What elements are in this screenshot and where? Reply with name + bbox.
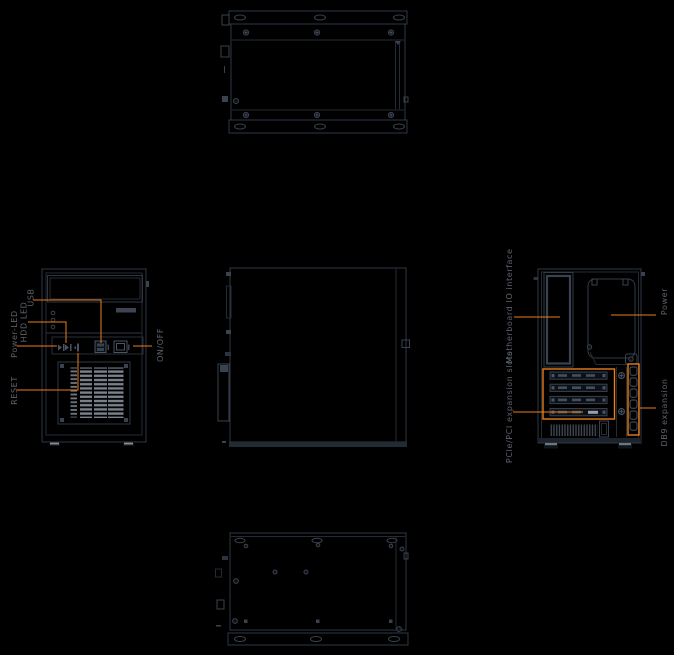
label-power-led: Power-LED bbox=[10, 310, 19, 358]
bottom-mounting-flange bbox=[228, 633, 408, 645]
leader-reset bbox=[17, 353, 78, 390]
psu-area bbox=[587, 279, 637, 365]
side-tab bbox=[226, 330, 231, 334]
bottom-mounting-flange bbox=[229, 120, 407, 133]
screw bbox=[233, 619, 238, 624]
screw bbox=[234, 579, 239, 584]
chassis-orthographic-diagram: USB HDD LED Power-LED RESET ON/OFF bbox=[0, 0, 674, 655]
reset-button bbox=[77, 344, 79, 352]
usb-port bbox=[95, 341, 109, 353]
screw bbox=[400, 547, 404, 551]
label-power: Power bbox=[660, 288, 669, 315]
screw bbox=[388, 112, 393, 117]
mounting-slot bbox=[311, 637, 322, 642]
side-view bbox=[218, 268, 410, 447]
rear-vent-comb bbox=[551, 425, 598, 437]
power-switch bbox=[114, 341, 130, 353]
side-tab bbox=[217, 600, 224, 609]
screw bbox=[629, 357, 634, 362]
front-grille bbox=[58, 362, 130, 424]
screw bbox=[234, 99, 239, 104]
expansion-slot bbox=[550, 372, 607, 379]
mounting-slot bbox=[394, 124, 405, 129]
screw bbox=[244, 620, 248, 624]
mounting-slot bbox=[235, 637, 246, 642]
front-feet bbox=[49, 442, 134, 446]
power-led-indicator bbox=[58, 345, 62, 351]
screw bbox=[243, 112, 248, 117]
mounting-slot bbox=[394, 15, 405, 20]
expansion-slot bbox=[550, 396, 607, 403]
thumbscrew bbox=[619, 373, 625, 379]
label-on-off: ON/OFF bbox=[156, 328, 165, 362]
side-panel bbox=[230, 268, 406, 442]
expansion-slots bbox=[550, 372, 607, 416]
io-shield bbox=[544, 273, 573, 368]
screw bbox=[316, 620, 320, 624]
db9-connector bbox=[630, 378, 637, 386]
rear-bracket bbox=[600, 421, 609, 437]
drive-bay-opening bbox=[48, 276, 143, 303]
screw bbox=[389, 544, 393, 548]
bottom-view bbox=[216, 533, 409, 645]
label-pcie-slots: PCIe/PCI expansion slots bbox=[505, 351, 514, 463]
grille-screw bbox=[60, 364, 64, 368]
bottom-panel bbox=[230, 533, 406, 630]
standoff-hole bbox=[273, 570, 277, 574]
mounting-slot bbox=[315, 15, 326, 20]
mounting-slot bbox=[312, 538, 322, 542]
standoff-hole bbox=[304, 570, 308, 574]
vent-hole bbox=[51, 318, 55, 322]
psu-tab bbox=[623, 279, 628, 285]
rear-base bbox=[539, 438, 640, 443]
screw bbox=[397, 627, 402, 632]
psu-tab bbox=[592, 279, 597, 285]
side-bracket bbox=[218, 364, 229, 421]
mounting-slot bbox=[315, 124, 326, 129]
side-tab bbox=[222, 15, 229, 25]
db9-connector bbox=[630, 367, 637, 375]
rear-feet bbox=[544, 443, 632, 449]
vent-hole bbox=[51, 311, 55, 315]
label-db9: DB9 expansion bbox=[660, 378, 669, 446]
screw bbox=[389, 620, 393, 624]
screw bbox=[314, 30, 319, 35]
label-reset: RESET bbox=[10, 376, 19, 405]
db9-connector bbox=[630, 389, 637, 397]
brand-logo bbox=[116, 308, 136, 313]
diagram-canvas: USB HDD LED Power-LED RESET ON/OFF bbox=[0, 0, 674, 655]
mounting-slot bbox=[235, 124, 246, 129]
screw bbox=[388, 30, 393, 35]
rear-view bbox=[534, 269, 646, 449]
label-hdd-led: HDD LED bbox=[20, 302, 29, 343]
hdd-led-indicator bbox=[65, 345, 69, 351]
vent-hole bbox=[51, 325, 55, 329]
db9-connector bbox=[630, 400, 637, 408]
screw bbox=[314, 112, 319, 117]
screw bbox=[243, 30, 248, 35]
side-tab bbox=[226, 272, 231, 276]
screw bbox=[316, 543, 320, 547]
side-tab bbox=[221, 46, 229, 57]
grille-screw bbox=[124, 364, 128, 368]
db9-connector bbox=[630, 411, 637, 419]
grille-screw bbox=[124, 418, 128, 422]
top-mounting-flange bbox=[229, 11, 407, 24]
edge-latch bbox=[642, 272, 646, 276]
top-panel bbox=[231, 24, 405, 120]
screw bbox=[244, 544, 248, 548]
front-view bbox=[42, 269, 149, 446]
side-base bbox=[229, 442, 407, 447]
screw bbox=[587, 345, 591, 349]
top-view bbox=[221, 11, 408, 133]
expansion-slot bbox=[550, 384, 607, 391]
mounting-slot bbox=[235, 538, 245, 542]
mounting-slot bbox=[389, 637, 400, 642]
side-notch bbox=[146, 281, 149, 287]
db9-column bbox=[630, 367, 637, 430]
mounting-slot bbox=[235, 15, 246, 20]
grille-screw bbox=[60, 418, 64, 422]
db9-connector bbox=[630, 422, 637, 430]
thumbscrew bbox=[619, 409, 625, 415]
side-tab bbox=[216, 569, 222, 577]
label-motherboard-io: Motherboard IO interface bbox=[505, 248, 514, 363]
